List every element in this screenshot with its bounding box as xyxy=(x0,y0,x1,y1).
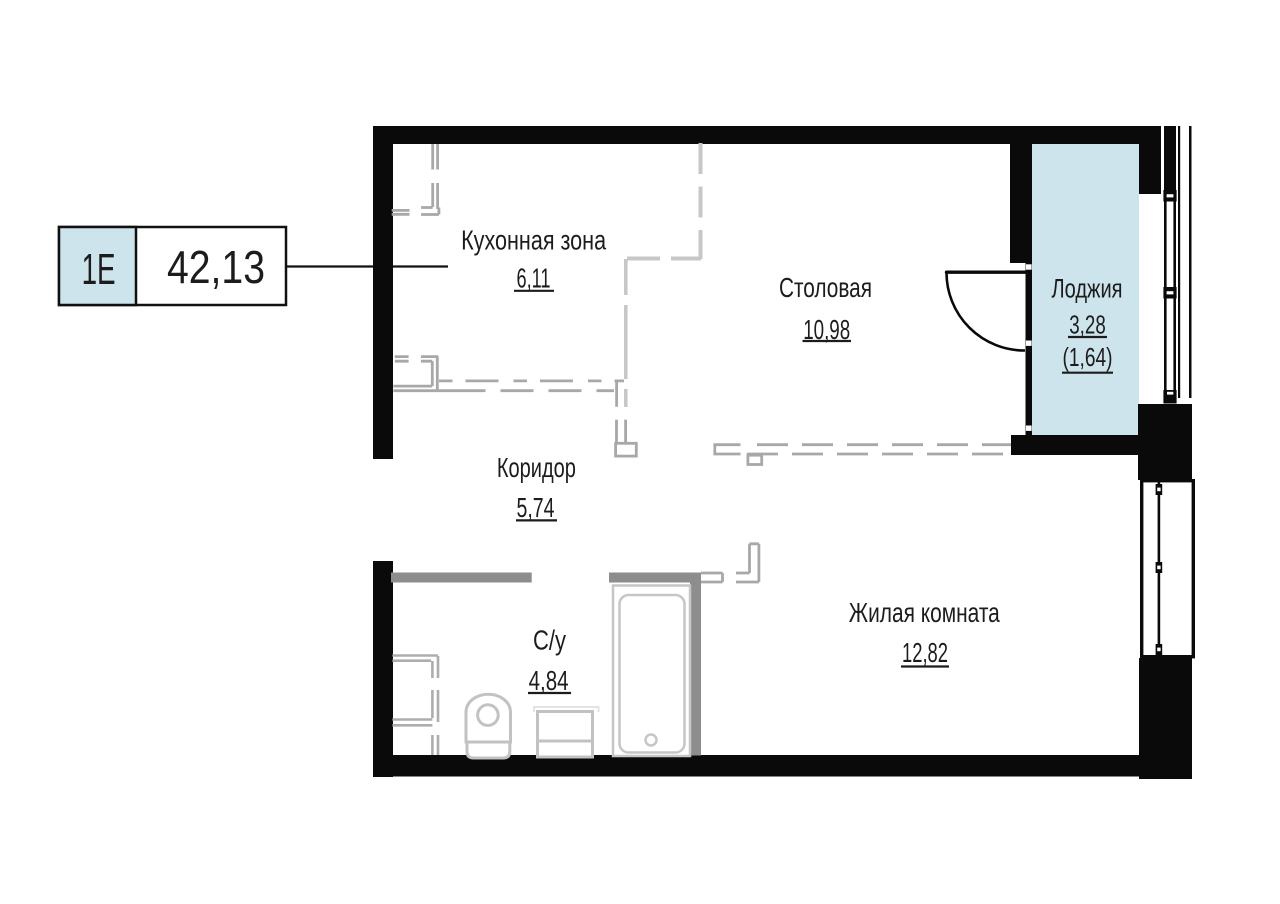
svg-text:1Е: 1Е xyxy=(82,245,116,294)
svg-text:Жилая комната: Жилая комната xyxy=(849,597,1001,628)
svg-text:5,74: 5,74 xyxy=(517,492,555,523)
svg-text:Коридор: Коридор xyxy=(497,452,576,483)
svg-text:3,28: 3,28 xyxy=(1069,309,1106,339)
svg-text:Столовая: Столовая xyxy=(779,272,872,303)
svg-text:42,13: 42,13 xyxy=(167,241,265,293)
svg-text:(1,64): (1,64) xyxy=(1063,342,1113,372)
svg-text:6,11: 6,11 xyxy=(517,263,551,294)
svg-text:С/у: С/у xyxy=(533,625,566,656)
svg-text:4,84: 4,84 xyxy=(529,665,569,696)
svg-text:Лоджия: Лоджия xyxy=(1052,274,1123,304)
svg-text:12,82: 12,82 xyxy=(902,637,948,668)
svg-text:Кухонная зона: Кухонная зона xyxy=(461,225,607,256)
